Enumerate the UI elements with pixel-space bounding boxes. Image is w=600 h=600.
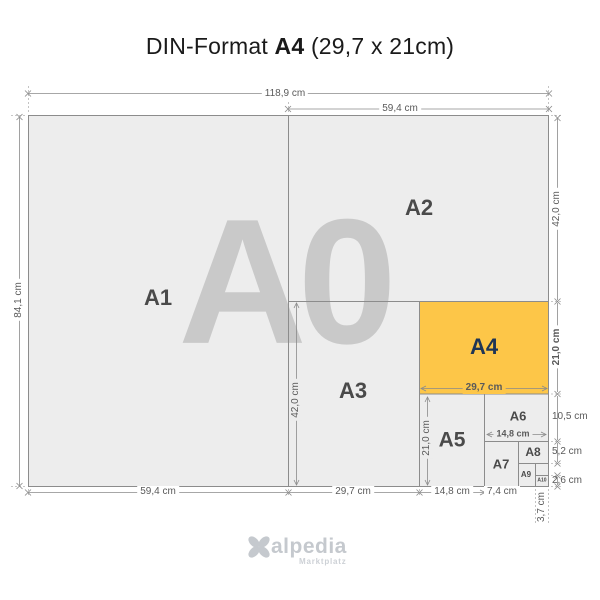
dim-a4-inner-width: 29,7 cm xyxy=(463,382,506,394)
dim-a4-height: 21,0 cm xyxy=(551,326,563,369)
din-format-diagram: DIN-Format A4 (29,7 x 21cm) A0 xyxy=(0,0,600,600)
dim-a5-width: 14,8 cm xyxy=(431,486,473,498)
dim-a10-height: 2,6 cm xyxy=(552,476,582,486)
dim-a2-height: 42,0 cm xyxy=(551,188,563,230)
label-a2: A2 xyxy=(405,197,433,219)
dim-total-width: 118,9 cm xyxy=(262,88,308,100)
label-a4: A4 xyxy=(470,336,498,358)
dim-a7-width: 7,4 cm xyxy=(484,486,520,498)
logo-tagline: Marktplatz xyxy=(299,557,347,566)
alpedia-logo: alpedia Marktplatz xyxy=(246,533,386,569)
dim-top-half-width: 59,4 cm xyxy=(379,103,421,115)
label-a1: A1 xyxy=(144,287,172,309)
logo-name: alpedia xyxy=(271,535,347,559)
dim-total-height: 84,1 cm xyxy=(13,279,25,321)
label-a7: A7 xyxy=(493,458,510,471)
dim-a6-height: 10,5 cm xyxy=(552,412,588,422)
dim-a5-inner-height: 21,0 cm xyxy=(421,417,433,459)
dim-a3-inner-height: 42,0 cm xyxy=(290,379,302,421)
dim-a8-height: 5,2 cm xyxy=(552,447,582,457)
dim-a3-width: 29,7 cm xyxy=(332,486,374,498)
dim-a1-width: 59,4 cm xyxy=(137,486,179,498)
label-a3: A3 xyxy=(339,380,367,402)
label-a9: A9 xyxy=(521,471,531,479)
dim-a9-width: 3,7 cm xyxy=(536,489,548,525)
label-a5: A5 xyxy=(439,430,466,451)
label-a10: A10 xyxy=(537,479,546,484)
label-a8: A8 xyxy=(525,446,540,458)
dim-a6-inner-width: 14,8 cm xyxy=(493,429,532,440)
alpedia-clover-icon xyxy=(246,533,272,561)
label-a6: A6 xyxy=(510,410,527,423)
